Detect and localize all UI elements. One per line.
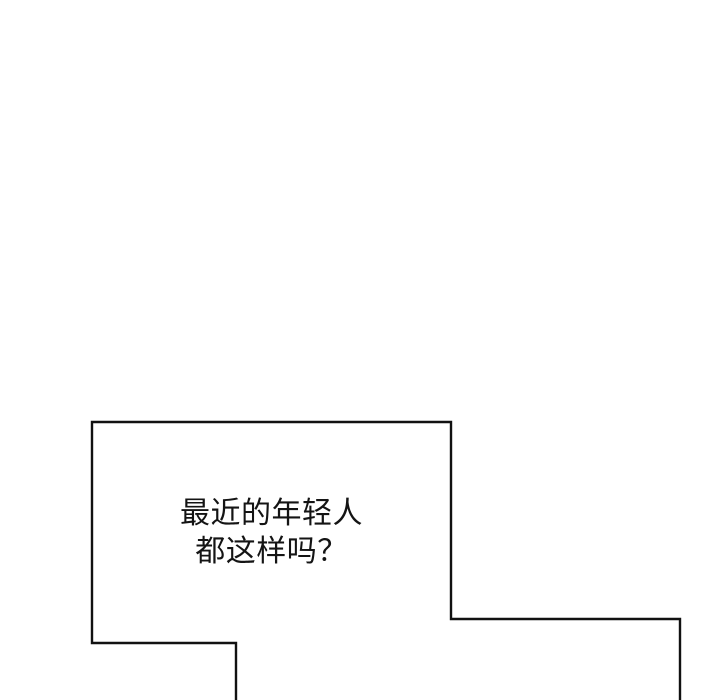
speech-bubble: 最近的年轻人 都这样吗？ (92, 422, 451, 643)
comic-panel: 最近的年轻人 都这样吗？ (0, 0, 720, 700)
speech-text-line-1: 最近的年轻人 (180, 495, 363, 533)
speech-text-line-2: 都这样吗？ (195, 533, 348, 571)
comic-page: { "colors": { "background": "#ffffff", "… (0, 0, 720, 700)
